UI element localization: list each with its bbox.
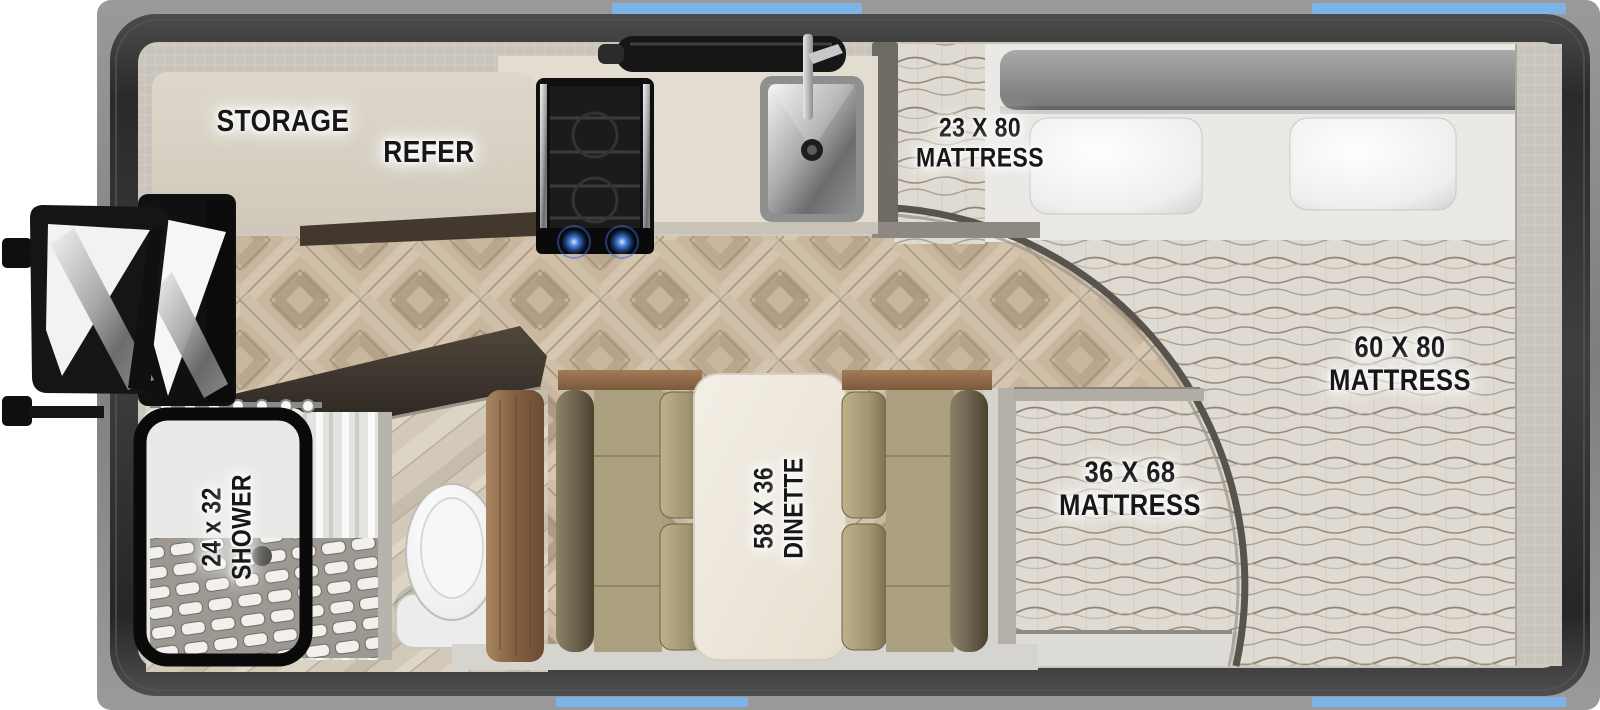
bed-headboard-shadow [1000, 106, 1556, 114]
dinette-back-cushion [950, 390, 988, 652]
shower-wall [378, 412, 392, 660]
dinette-bench-panel [886, 390, 954, 652]
dinette-seat-cushion [842, 392, 886, 518]
faucet [803, 34, 813, 120]
entry-steps [2, 205, 168, 426]
window-top-kitchen [612, 3, 862, 14]
dinette-back-cushion [556, 390, 594, 652]
label-storage: STORAGE [217, 104, 350, 138]
label-shower: 24 x 32 SHOWER [197, 474, 256, 580]
dinette-bench-rail [558, 370, 702, 390]
label-dinette: 58 X 36 DINETTE [749, 457, 808, 558]
label-refer-text: REFER [383, 134, 474, 169]
dinette-bench-rail [842, 370, 992, 390]
bed-platform-foot-strip [1016, 632, 1232, 666]
dinette-bench-panel [594, 390, 662, 652]
label-storage-text: STORAGE [217, 103, 350, 138]
label-refer: REFER [383, 135, 474, 169]
cooktop [536, 78, 654, 258]
pillow [1290, 118, 1456, 210]
window-bottom-dinette [556, 697, 748, 707]
camper-jack [2, 238, 32, 268]
label-mid-mattress: 36 X 68 MATTRESS [1059, 456, 1201, 522]
pillow [1030, 118, 1202, 214]
range-hood-handle [598, 44, 624, 64]
window-top-bedroom [1312, 3, 1566, 14]
label-queen-mattress: 60 X 80 MATTRESS [1329, 331, 1471, 397]
dinette [452, 370, 1038, 670]
camper-jack [2, 396, 32, 426]
bed-headboard [1000, 50, 1556, 110]
label-bunk-mattress: 23 X 80 MATTRESS [916, 113, 1044, 172]
window-bottom-bedroom [1312, 697, 1566, 707]
dinette-seat-cushion [842, 524, 886, 650]
burner-knob [610, 230, 634, 254]
burner-knob [562, 230, 586, 254]
floorplan-canvas: STORAGE REFER 23 X 80 MATTRESS 60 X 80 M… [0, 0, 1600, 710]
